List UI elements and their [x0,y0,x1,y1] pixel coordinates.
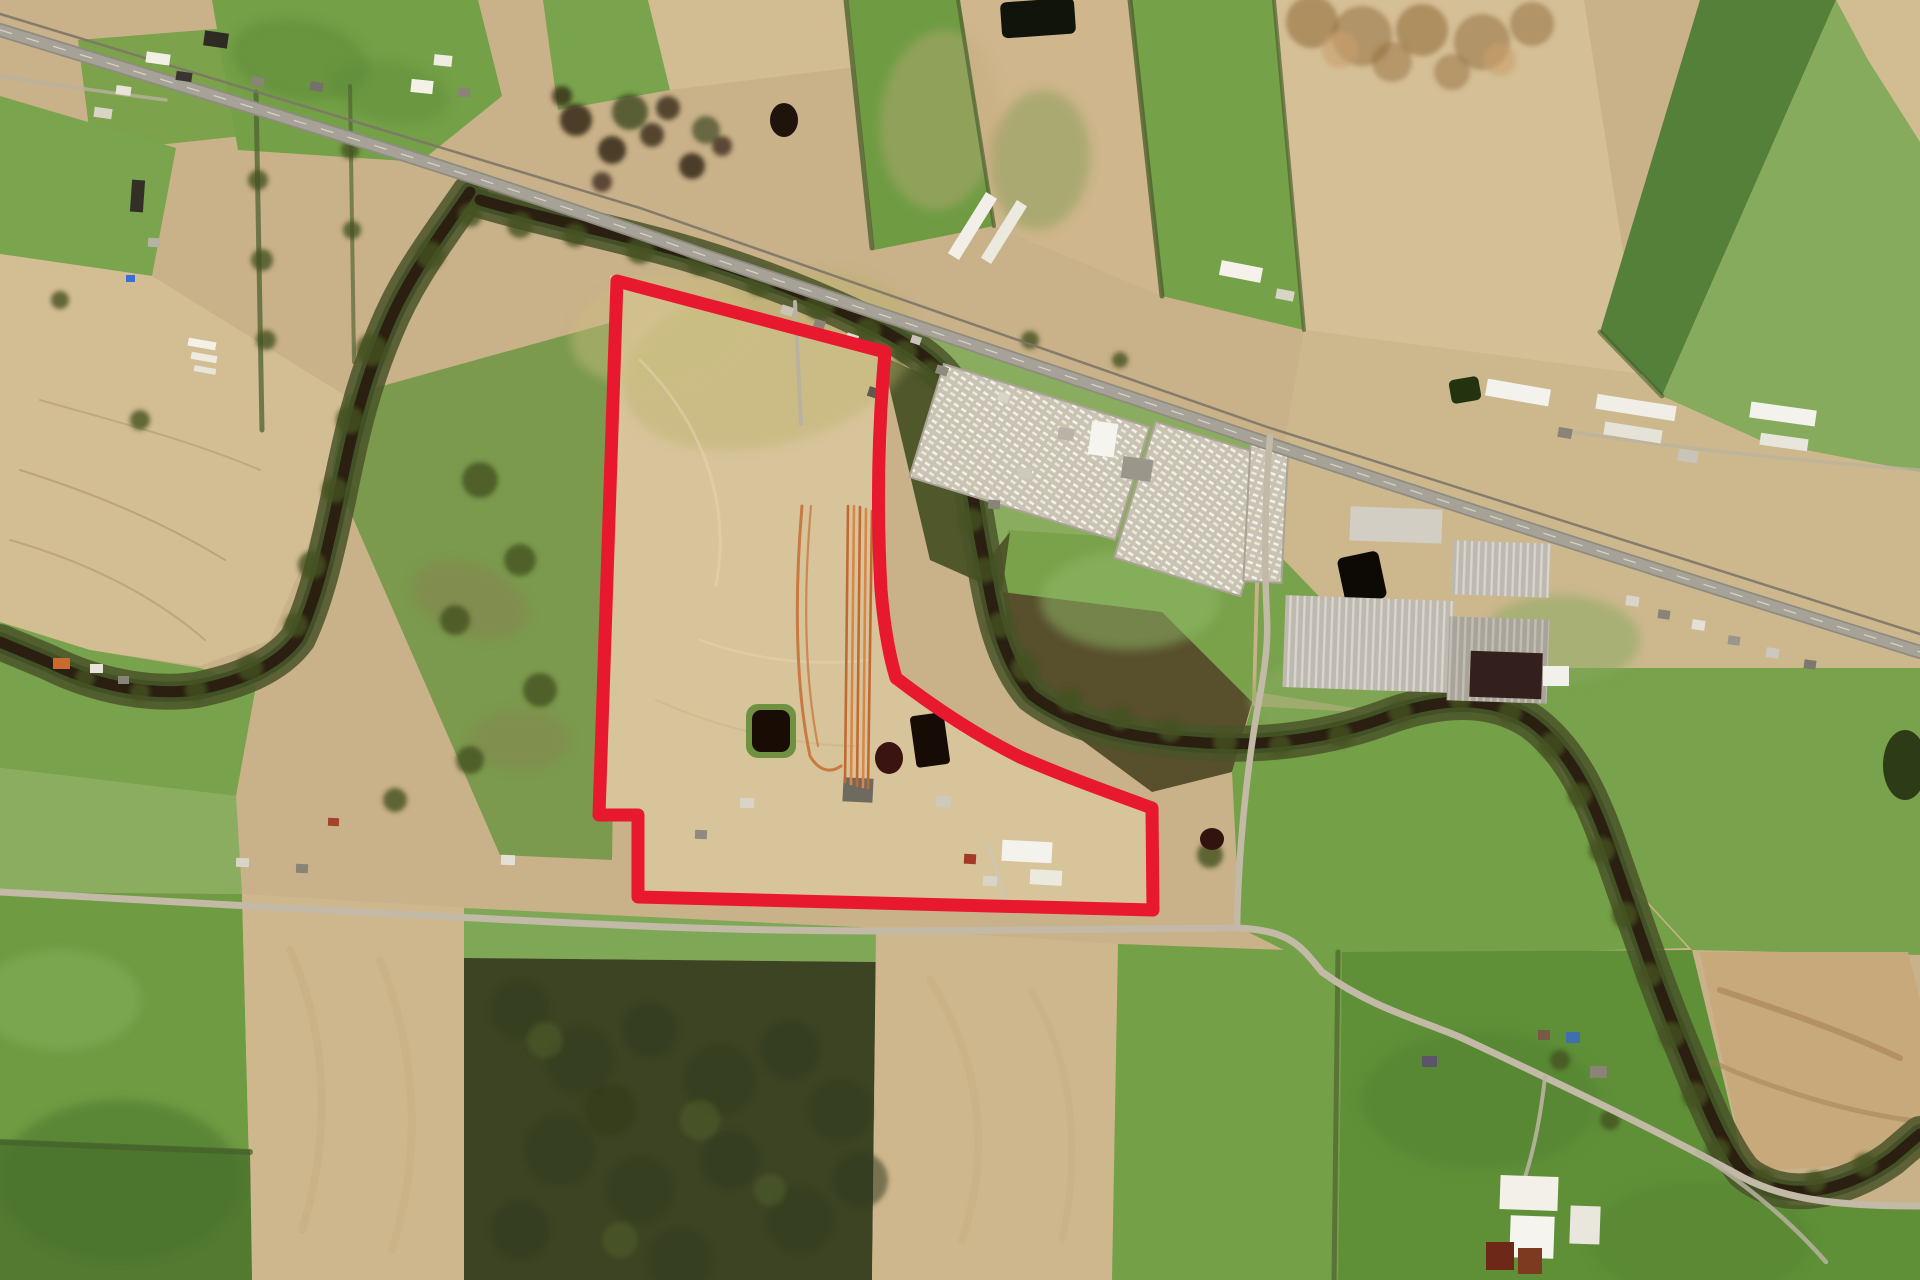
building [1566,1032,1580,1043]
dirt-pile [1484,44,1516,76]
tree-clump [1539,732,1565,758]
building [1543,666,1569,686]
tree-clump [130,410,150,430]
building [236,858,249,867]
building [1691,619,1705,631]
building [90,664,103,673]
building [1088,420,1118,457]
tree-clump [1112,352,1128,368]
field-tint [0,1100,240,1260]
building [1057,427,1075,441]
tree-clump [1328,723,1352,747]
building [1569,1205,1600,1244]
marsh-blob [692,116,720,144]
building [695,830,707,839]
tree-clump [1498,700,1522,724]
building [1727,635,1740,646]
building [126,275,135,282]
tree-clump [987,612,1013,638]
tree-clump [1638,963,1662,987]
building [1001,840,1052,864]
tree-clump [237,655,263,681]
forest-canopy-blob [606,1156,674,1224]
marsh-blob [560,104,592,136]
tree-clump [248,170,268,190]
tree-clump [298,551,326,579]
tree-clump [383,788,407,812]
marsh-blob [656,96,680,120]
marsh-blob [592,172,612,192]
tree-clump [284,613,308,637]
marsh-blob [598,136,626,164]
building [148,238,161,248]
dirt-pile [1510,2,1554,46]
building [1282,595,1453,693]
forest-canopy-blob [808,1078,872,1142]
tree-clump [1589,837,1615,863]
tree-clump [1550,1050,1570,1070]
forest-canopy-blob [527,1022,563,1058]
building [1422,1056,1437,1067]
forest-canopy-blob [760,1020,820,1080]
tree-clump [1388,700,1412,724]
building [1518,1248,1542,1274]
building [964,854,977,865]
tree-clump [507,212,533,238]
dirt-pile [1372,42,1412,82]
tree-clump [1057,687,1083,713]
building [1765,647,1779,659]
dirt-pile [1434,54,1470,90]
tree-clump [893,340,917,364]
building [936,796,952,808]
tree-clump [972,557,998,583]
marsh-blob [679,153,705,179]
tree-clump [1804,1171,1826,1193]
dirt-pile [1322,32,1358,68]
marsh-blob [640,123,664,147]
tree-clump [1011,654,1039,682]
field-tint [470,710,570,770]
pond [752,710,790,752]
tree-clump [251,249,273,271]
tree-clump [563,223,587,247]
building [1499,1175,1558,1211]
forest-canopy-blob [524,1114,596,1186]
pond [1200,828,1224,850]
forest-canopy-blob [832,1152,888,1208]
tree-clump [1568,783,1592,807]
satellite-map [0,0,1920,1280]
tree-clump [504,544,536,576]
building [296,864,308,873]
tree-clump [456,746,484,774]
tree-clump [1213,730,1237,754]
building [1486,1242,1514,1270]
tree-clump [130,682,150,702]
building [433,54,452,67]
building [410,79,433,94]
tree-clump [343,221,361,239]
building [1657,609,1670,620]
pond [875,742,903,774]
building [53,658,70,669]
building [1625,595,1639,607]
satellite-image [0,0,1920,1280]
building [118,676,129,684]
field-patch [242,894,470,1280]
building [1538,1030,1550,1040]
building [1803,659,1816,670]
forest-canopy-blob [602,1222,638,1258]
building [501,855,515,865]
tree-clump [1269,734,1291,756]
tree-clump [523,673,557,707]
tree-clump [458,203,482,227]
tree-clump [356,334,388,366]
pond [1448,376,1482,405]
building [458,87,471,97]
tree-clump [256,330,276,350]
pond [1000,0,1076,39]
building [1018,468,1033,479]
building [1349,506,1442,543]
tree-clump [462,462,498,498]
building [1030,869,1063,886]
forest-canopy-blob [584,1084,636,1136]
building [740,798,754,808]
forest-canopy-blob [680,1100,720,1140]
tree-clump [336,406,364,434]
forest-canopy-blob [700,1130,760,1190]
marsh-blob [612,94,648,130]
tree-clump [1612,902,1638,928]
tree-clump [51,291,69,309]
building [328,818,339,826]
tree-clump [1659,1022,1685,1048]
tree-clump [1108,706,1132,730]
building [983,876,998,887]
building [1590,1066,1607,1078]
building [988,500,1001,510]
building [1121,456,1154,482]
tree-clump [440,605,470,635]
tree-clump [1682,1082,1708,1108]
forest-canopy-blob [490,1200,550,1260]
building [130,180,145,213]
building [1451,540,1551,597]
tree-clump [960,508,984,532]
building [1469,651,1543,699]
tree-clump [185,679,207,701]
tree-clump [416,241,444,269]
tree-clump [322,477,348,503]
forest-canopy-blob [754,1174,786,1206]
pond [770,103,798,137]
field-patch [1112,944,1342,1280]
field-patch [872,928,1118,1280]
forest-canopy-blob [622,1002,678,1058]
tree-clump [1853,1153,1877,1177]
tree-clump [1158,718,1182,742]
marsh-blob [552,86,572,106]
